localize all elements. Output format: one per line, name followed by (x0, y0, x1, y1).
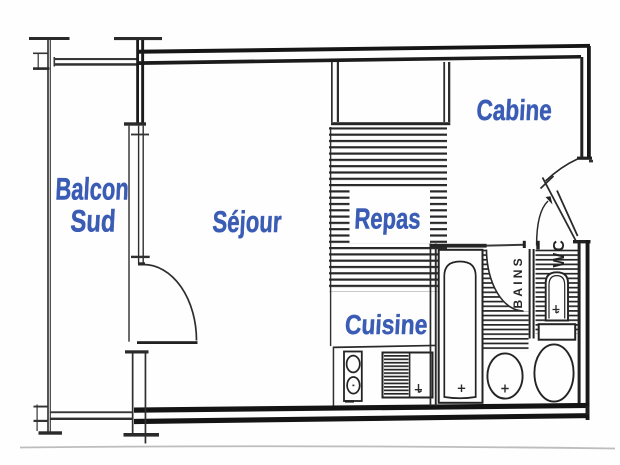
svg-text:Balcon: Balcon (55, 172, 130, 207)
svg-text:Sud: Sud (70, 204, 117, 239)
svg-text:WC: WC (551, 239, 568, 268)
svg-text:Cuisine: Cuisine (344, 310, 428, 340)
svg-text:Séjour: Séjour (212, 205, 283, 239)
svg-text:Repas: Repas (354, 204, 422, 235)
svg-text:BAINS: BAINS (511, 255, 525, 308)
svg-text:Cabine: Cabine (476, 93, 553, 126)
